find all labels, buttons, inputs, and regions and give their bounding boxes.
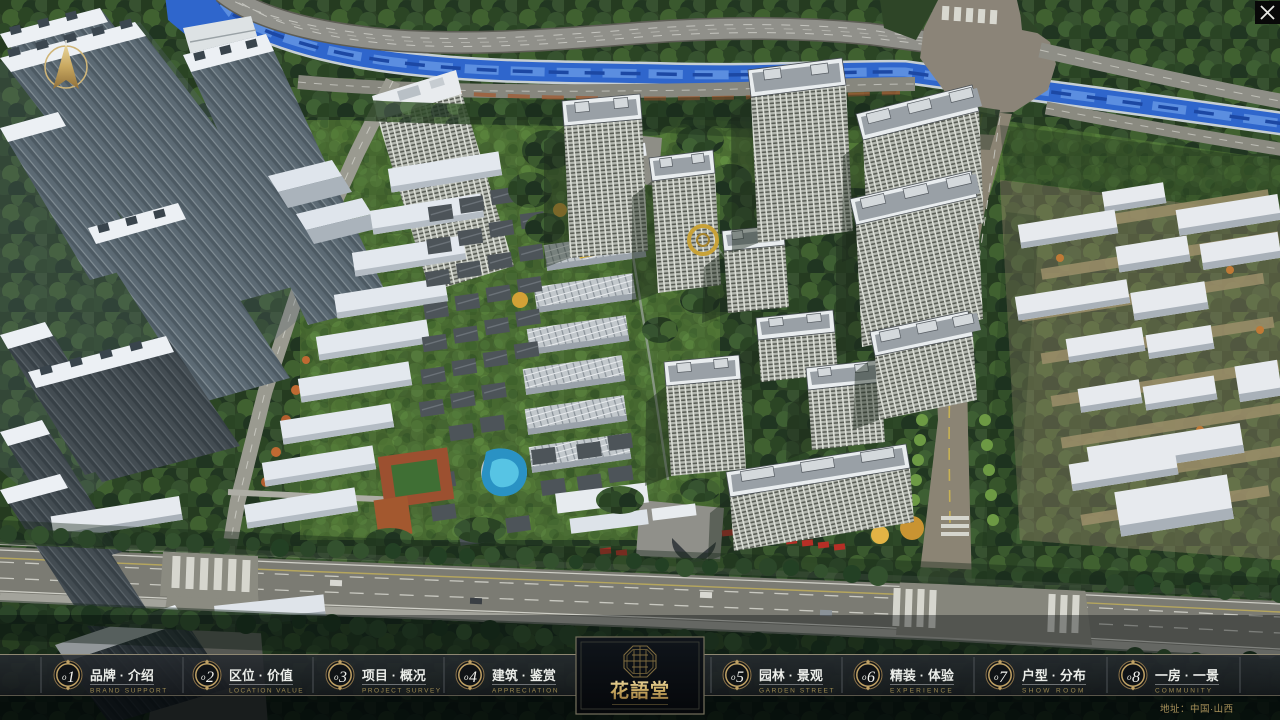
svg-text:一房 · 一景: 一房 · 一景 xyxy=(1155,668,1219,683)
svg-text:SHOW ROOM: SHOW ROOM xyxy=(1022,688,1086,695)
svg-text:APPRECIATION: APPRECIATION xyxy=(492,688,559,695)
svg-text:户型 · 分布: 户型 · 分布 xyxy=(1022,668,1086,683)
svg-text:园林 · 景观: 园林 · 景观 xyxy=(759,668,823,683)
svg-text:LOCATION VALUE: LOCATION VALUE xyxy=(229,688,304,695)
svg-text:BRAND SUPPORT: BRAND SUPPORT xyxy=(90,688,168,695)
svg-text:5: 5 xyxy=(736,669,744,686)
svg-text:COMMUNITY: COMMUNITY xyxy=(1155,688,1213,695)
svg-text:PROJECT SURVEY: PROJECT SURVEY xyxy=(362,688,442,695)
svg-text:1: 1 xyxy=(67,669,75,686)
svg-text:品牌 · 介绍: 品牌 · 介绍 xyxy=(90,668,154,683)
svg-text:GARDEN STREET: GARDEN STREET xyxy=(759,688,835,695)
svg-text:地址：中国·山西: 地址：中国·山西 xyxy=(1160,703,1234,715)
svg-text:项目 · 概况: 项目 · 概况 xyxy=(362,668,426,683)
svg-text:建筑 · 鉴赏: 建筑 · 鉴赏 xyxy=(492,668,556,683)
svg-text:区位 · 价值: 区位 · 价值 xyxy=(229,668,293,683)
svg-text:2: 2 xyxy=(206,669,214,686)
svg-text:3: 3 xyxy=(338,669,347,686)
svg-text:EXPERIENCE: EXPERIENCE xyxy=(890,688,954,695)
svg-text:4: 4 xyxy=(469,669,477,686)
svg-text:6: 6 xyxy=(867,669,875,686)
svg-text:7: 7 xyxy=(999,669,1008,686)
svg-text:精装 · 体验: 精装 · 体验 xyxy=(890,668,954,683)
svg-text:花語堂: 花語堂 xyxy=(610,679,670,702)
svg-text:8: 8 xyxy=(1132,669,1140,686)
